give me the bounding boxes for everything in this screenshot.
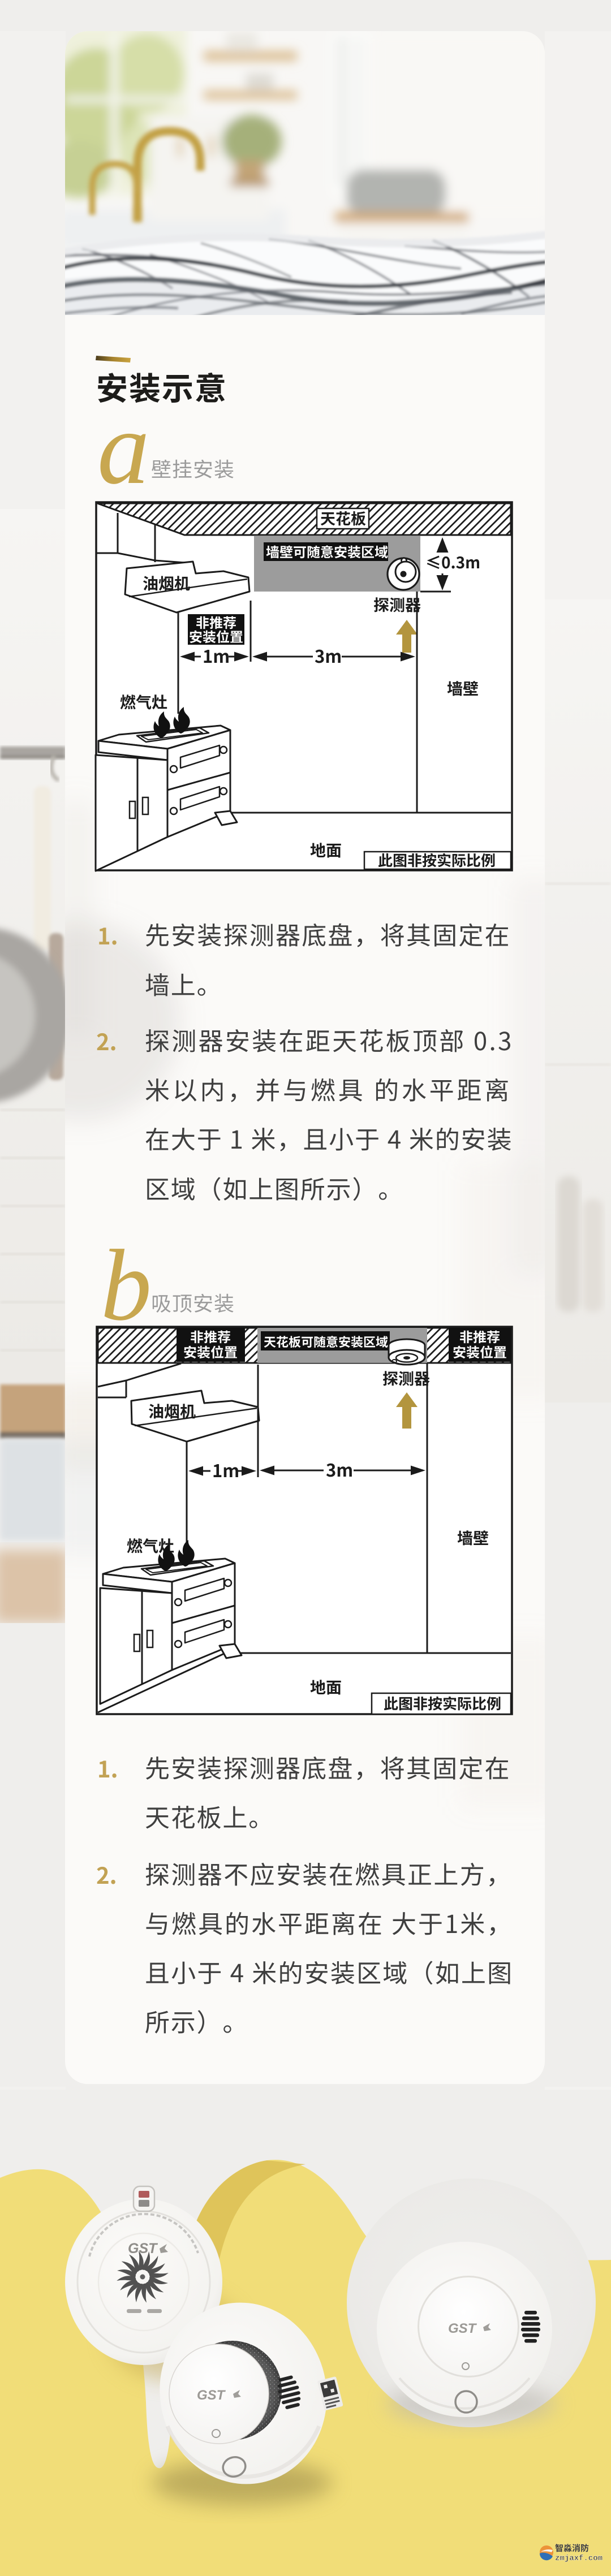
svg-text:GST: GST: [128, 2241, 158, 2256]
svg-text:GST: GST: [197, 2388, 226, 2403]
svg-text:GST: GST: [448, 2321, 477, 2336]
svg-text:b: b: [101, 1229, 152, 1341]
svg-text:zmjaxf.com: zmjaxf.com: [555, 2554, 603, 2563]
svg-text:a: a: [97, 390, 150, 506]
